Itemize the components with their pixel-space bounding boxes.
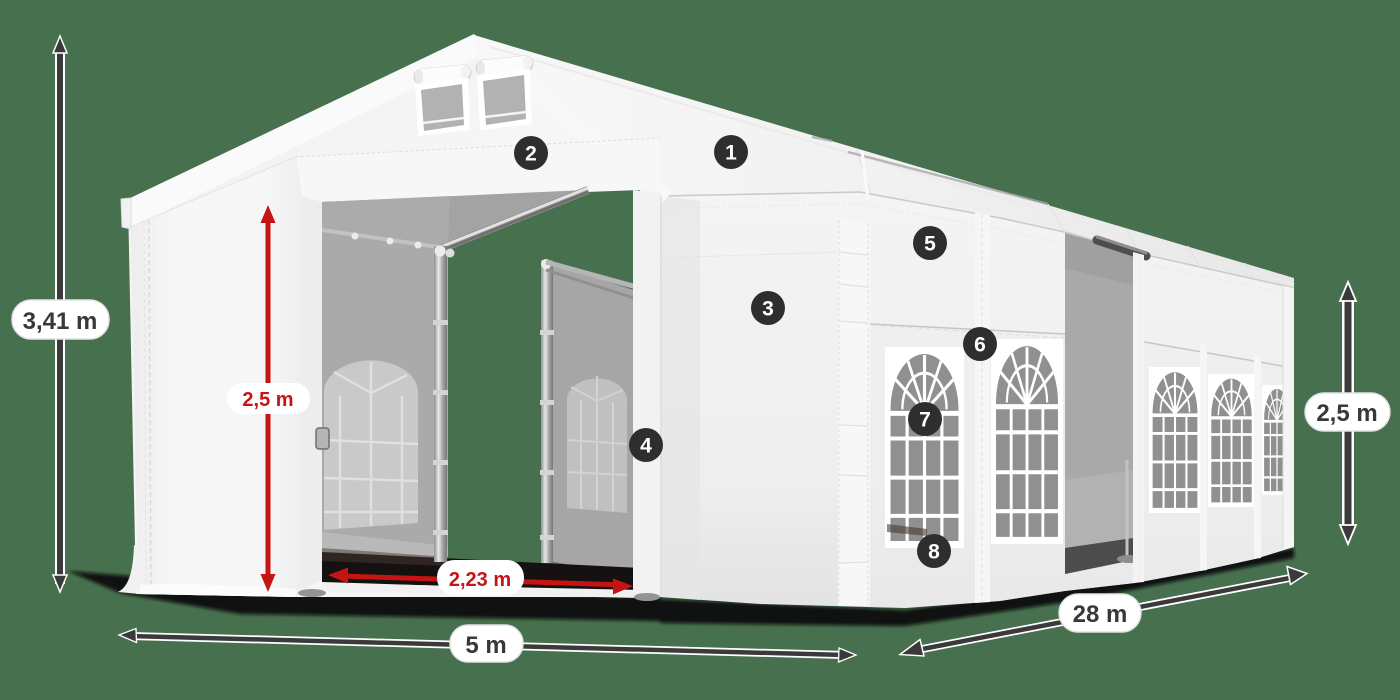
svg-text:5 m: 5 m bbox=[465, 632, 506, 659]
svg-text:5: 5 bbox=[924, 233, 936, 256]
svg-text:2,23 m: 2,23 m bbox=[449, 569, 511, 591]
svg-text:2,5 m: 2,5 m bbox=[242, 389, 293, 411]
svg-text:4: 4 bbox=[640, 435, 652, 458]
svg-text:28 m: 28 m bbox=[1073, 601, 1128, 628]
svg-text:7: 7 bbox=[919, 409, 931, 432]
svg-text:1: 1 bbox=[725, 142, 737, 165]
svg-text:6: 6 bbox=[974, 334, 986, 357]
svg-text:2: 2 bbox=[525, 143, 537, 166]
svg-text:3,41 m: 3,41 m bbox=[23, 308, 98, 335]
svg-text:3: 3 bbox=[762, 298, 774, 321]
svg-text:8: 8 bbox=[928, 541, 940, 564]
svg-text:2,5 m: 2,5 m bbox=[1316, 400, 1377, 427]
